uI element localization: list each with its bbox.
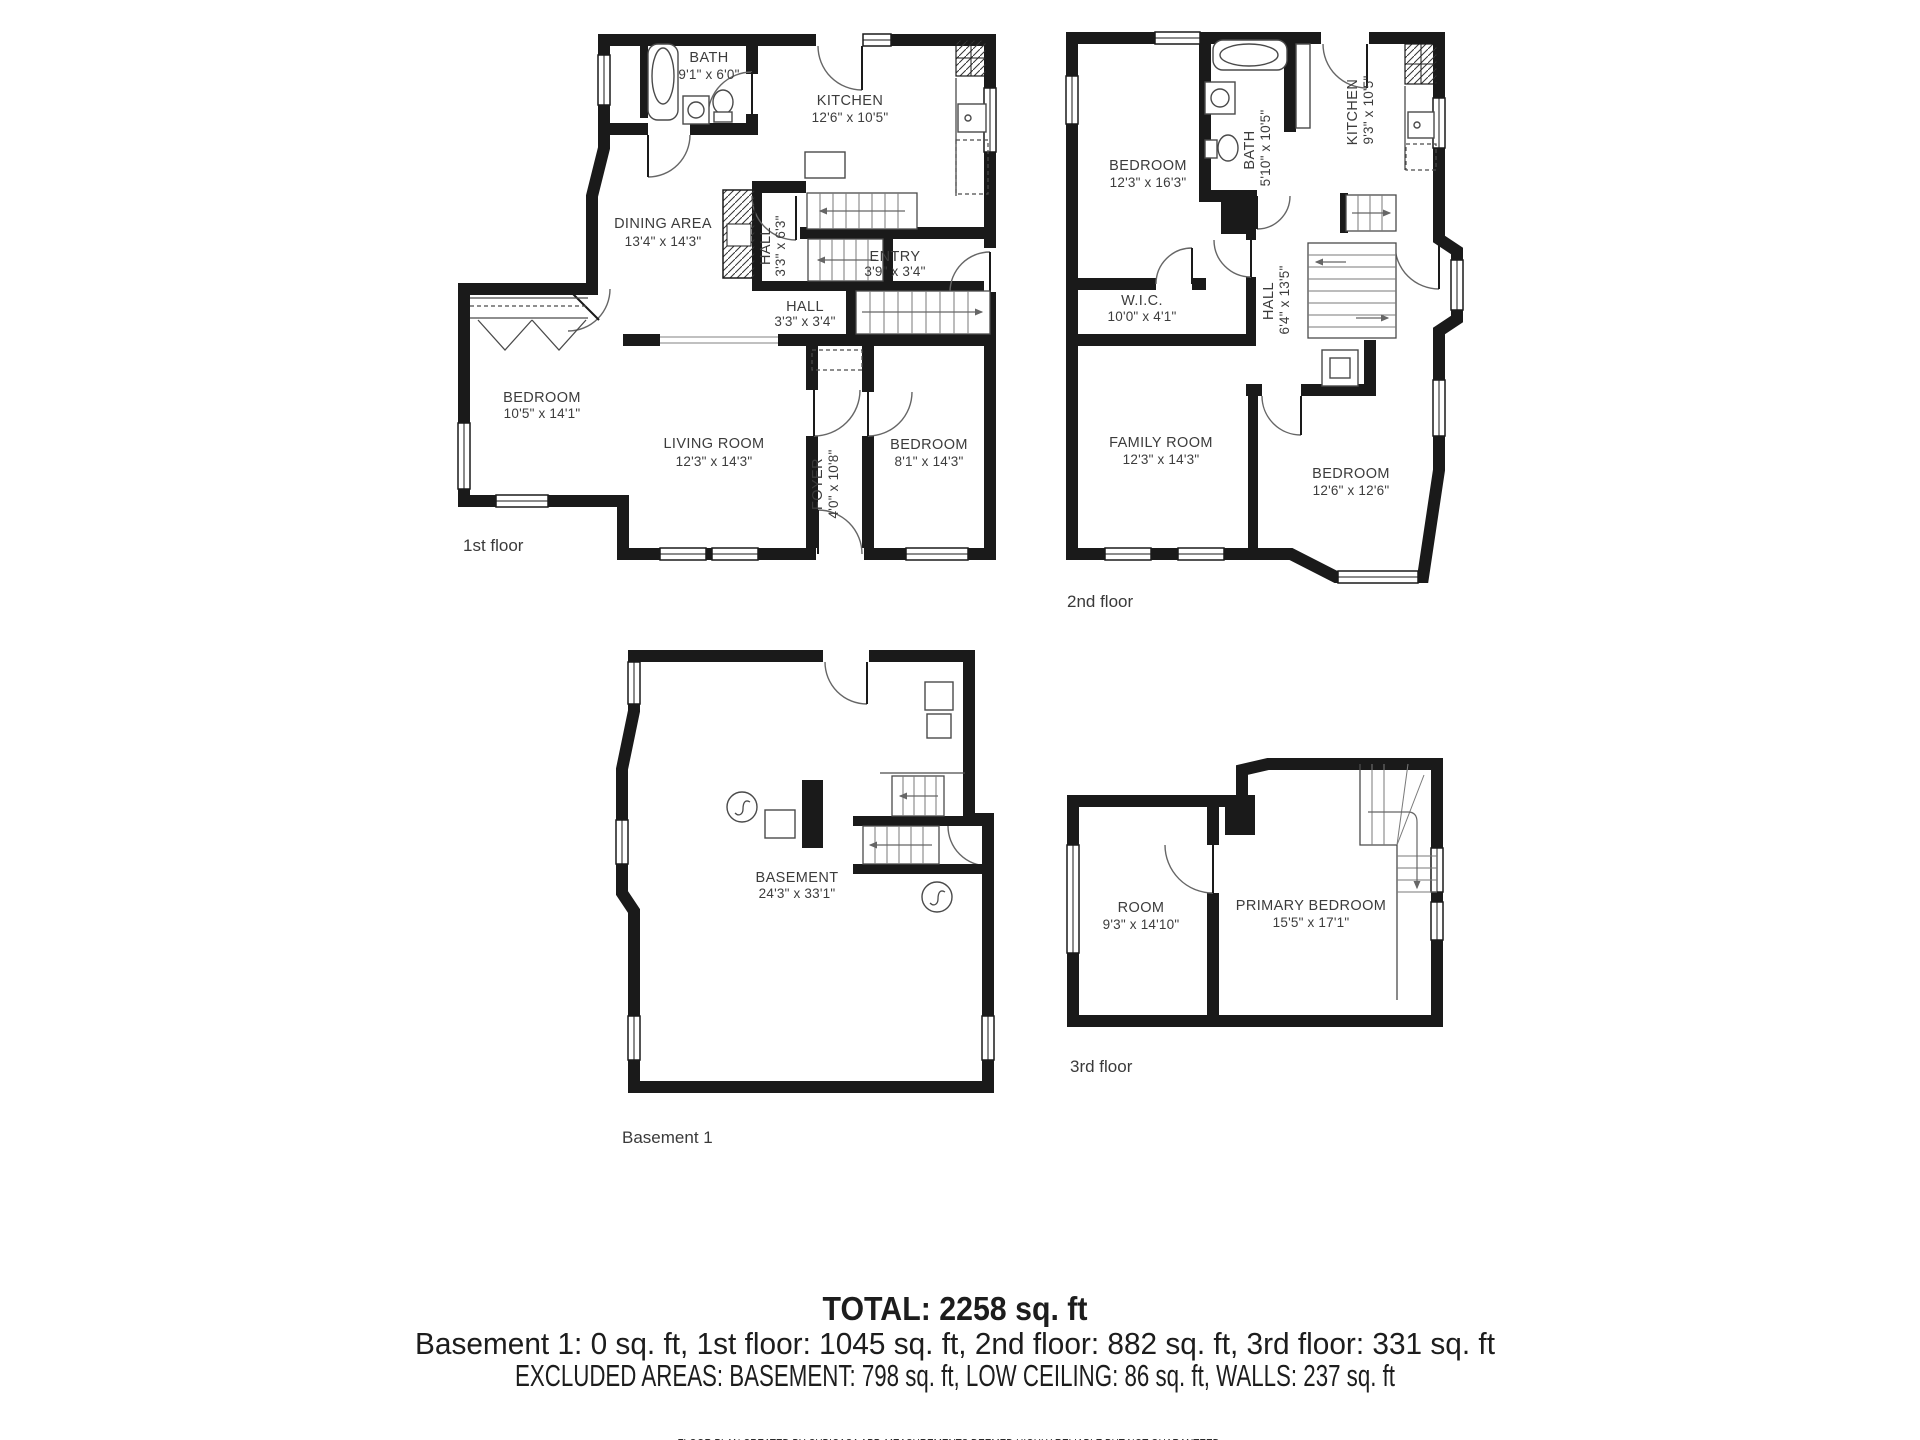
room-dims: 12'3" x 16'3" (1110, 175, 1187, 190)
room-label: KITCHEN (1345, 79, 1361, 145)
third-floor-plan: ROOM 9'3" x 14'10" PRIMARY BEDROOM 15'5"… (1067, 764, 1443, 1076)
room-dims: 6'4" x 13'5" (1277, 266, 1292, 335)
room-label: HALL (786, 299, 824, 315)
door-opening (816, 34, 864, 46)
room-label: FOYER (810, 458, 826, 510)
stove-icon (956, 40, 986, 76)
room-dims: 4'0" x 10'8" (826, 450, 841, 519)
room-label: BATH (1242, 130, 1258, 169)
second-floor-plan: BEDROOM 12'3" x 16'3" BATH 5'10" x 10'5"… (1066, 32, 1463, 611)
stairs-main (1308, 243, 1396, 338)
room-label: BEDROOM (1109, 158, 1187, 174)
room-label: BATH (689, 50, 728, 66)
room-label: BASEMENT (756, 870, 839, 886)
floor-label: 3rd floor (1070, 1057, 1133, 1076)
first-floor-plan: BATH 9'1" x 6'0" KITCHEN 12'6" x 10'5" D… (458, 34, 996, 560)
stairs-down (856, 291, 990, 334)
utility-closet (1322, 350, 1358, 386)
room-label: BEDROOM (1312, 466, 1390, 482)
smoke-detector-icon (727, 792, 757, 822)
room-dims: 24'3" x 33'1" (759, 886, 836, 901)
kitchen-sink-icon (1408, 112, 1434, 138)
room-dims: 9'1" x 6'0" (678, 67, 739, 82)
kitchen-island (805, 152, 845, 178)
floor-areas-text: Basement 1: 0 sq. ft, 1st floor: 1045 sq… (415, 1326, 1495, 1361)
door-opening (1321, 32, 1369, 44)
room-label: HALL (758, 227, 774, 265)
room-dims: 3'9" x 3'4" (864, 264, 925, 279)
room-dims: 5'10" x 10'5" (1258, 110, 1273, 187)
room-dims: 8'1" x 14'3" (895, 454, 964, 469)
floor-label: 2nd floor (1067, 592, 1133, 611)
room-dims: 9'3" x 14'10" (1103, 917, 1180, 932)
floor-plan-sheet: BATH 9'1" x 6'0" KITCHEN 12'6" x 10'5" D… (0, 0, 1920, 1440)
excluded-areas-text: EXCLUDED AREAS: BASEMENT: 798 sq. ft, LO… (515, 1358, 1395, 1393)
room-dims: 12'3" x 14'3" (1123, 452, 1200, 467)
room-label: BEDROOM (503, 390, 581, 406)
room-label: BEDROOM (890, 437, 968, 453)
room-dims: 12'3" x 14'3" (676, 454, 753, 469)
stove-icon (1405, 44, 1437, 84)
area-summary: TOTAL: 2258 sq. ft Basement 1: 0 sq. ft,… (415, 1290, 1495, 1440)
room-label: ROOM (1118, 900, 1165, 916)
room-dims: 3'3" x 3'4" (774, 314, 835, 329)
room-dims: 12'6" x 10'5" (812, 110, 889, 125)
roof-notch (1225, 795, 1255, 835)
room-label: FAMILY ROOM (1109, 435, 1213, 451)
disclaimer-text: FLOOR PLAN CREATED BY CUBICASA APP. MEAS… (678, 1436, 1223, 1440)
sink-icon (683, 96, 709, 124)
floor-label: 1st floor (463, 536, 524, 555)
room-label: HALL (1261, 282, 1277, 320)
sink-icon (1205, 82, 1235, 114)
room-dims: 10'0" x 4'1" (1108, 309, 1177, 324)
door-opening (823, 650, 869, 662)
room-label: KITCHEN (817, 93, 883, 109)
chimney (802, 780, 823, 848)
room-label: W.I.C. (1121, 293, 1163, 309)
stairs-upper-flight (1346, 195, 1396, 231)
bathtub-icon (1213, 40, 1287, 70)
room-dims: 10'5" x 14'1" (504, 406, 581, 421)
total-area-text: TOTAL: 2258 sq. ft (823, 1290, 1088, 1327)
room-label: DINING AREA (614, 216, 712, 232)
basement-plan: BASEMENT 24'3" x 33'1" Basement 1 (616, 650, 994, 1147)
door-opening (816, 548, 864, 560)
room-label: ENTRY (870, 249, 921, 265)
kitchen-sink-icon (958, 104, 986, 132)
stairs-lower (863, 826, 939, 864)
room-label: PRIMARY BEDROOM (1236, 898, 1387, 914)
fireplace-icon (723, 190, 755, 278)
room-dims: 15'5" x 17'1" (1273, 915, 1350, 930)
bathtub-icon (648, 44, 678, 120)
room-label: LIVING ROOM (663, 436, 764, 452)
room-dims: 13'4" x 14'3" (625, 234, 702, 249)
kitchen-cabinet (1296, 44, 1310, 128)
toilet-icon (713, 90, 733, 122)
floor-plan-canvas: BATH 9'1" x 6'0" KITCHEN 12'6" x 10'5" D… (0, 0, 1920, 1440)
room-dims: 9'3" x 10'5" (1361, 76, 1376, 145)
room-dims: 3'3" x 6'3" (773, 215, 788, 276)
room-dims: 12'6" x 12'6" (1313, 483, 1390, 498)
floor-label: Basement 1 (622, 1128, 713, 1147)
stairs-up (807, 193, 917, 229)
smoke-detector-icon (922, 882, 952, 912)
